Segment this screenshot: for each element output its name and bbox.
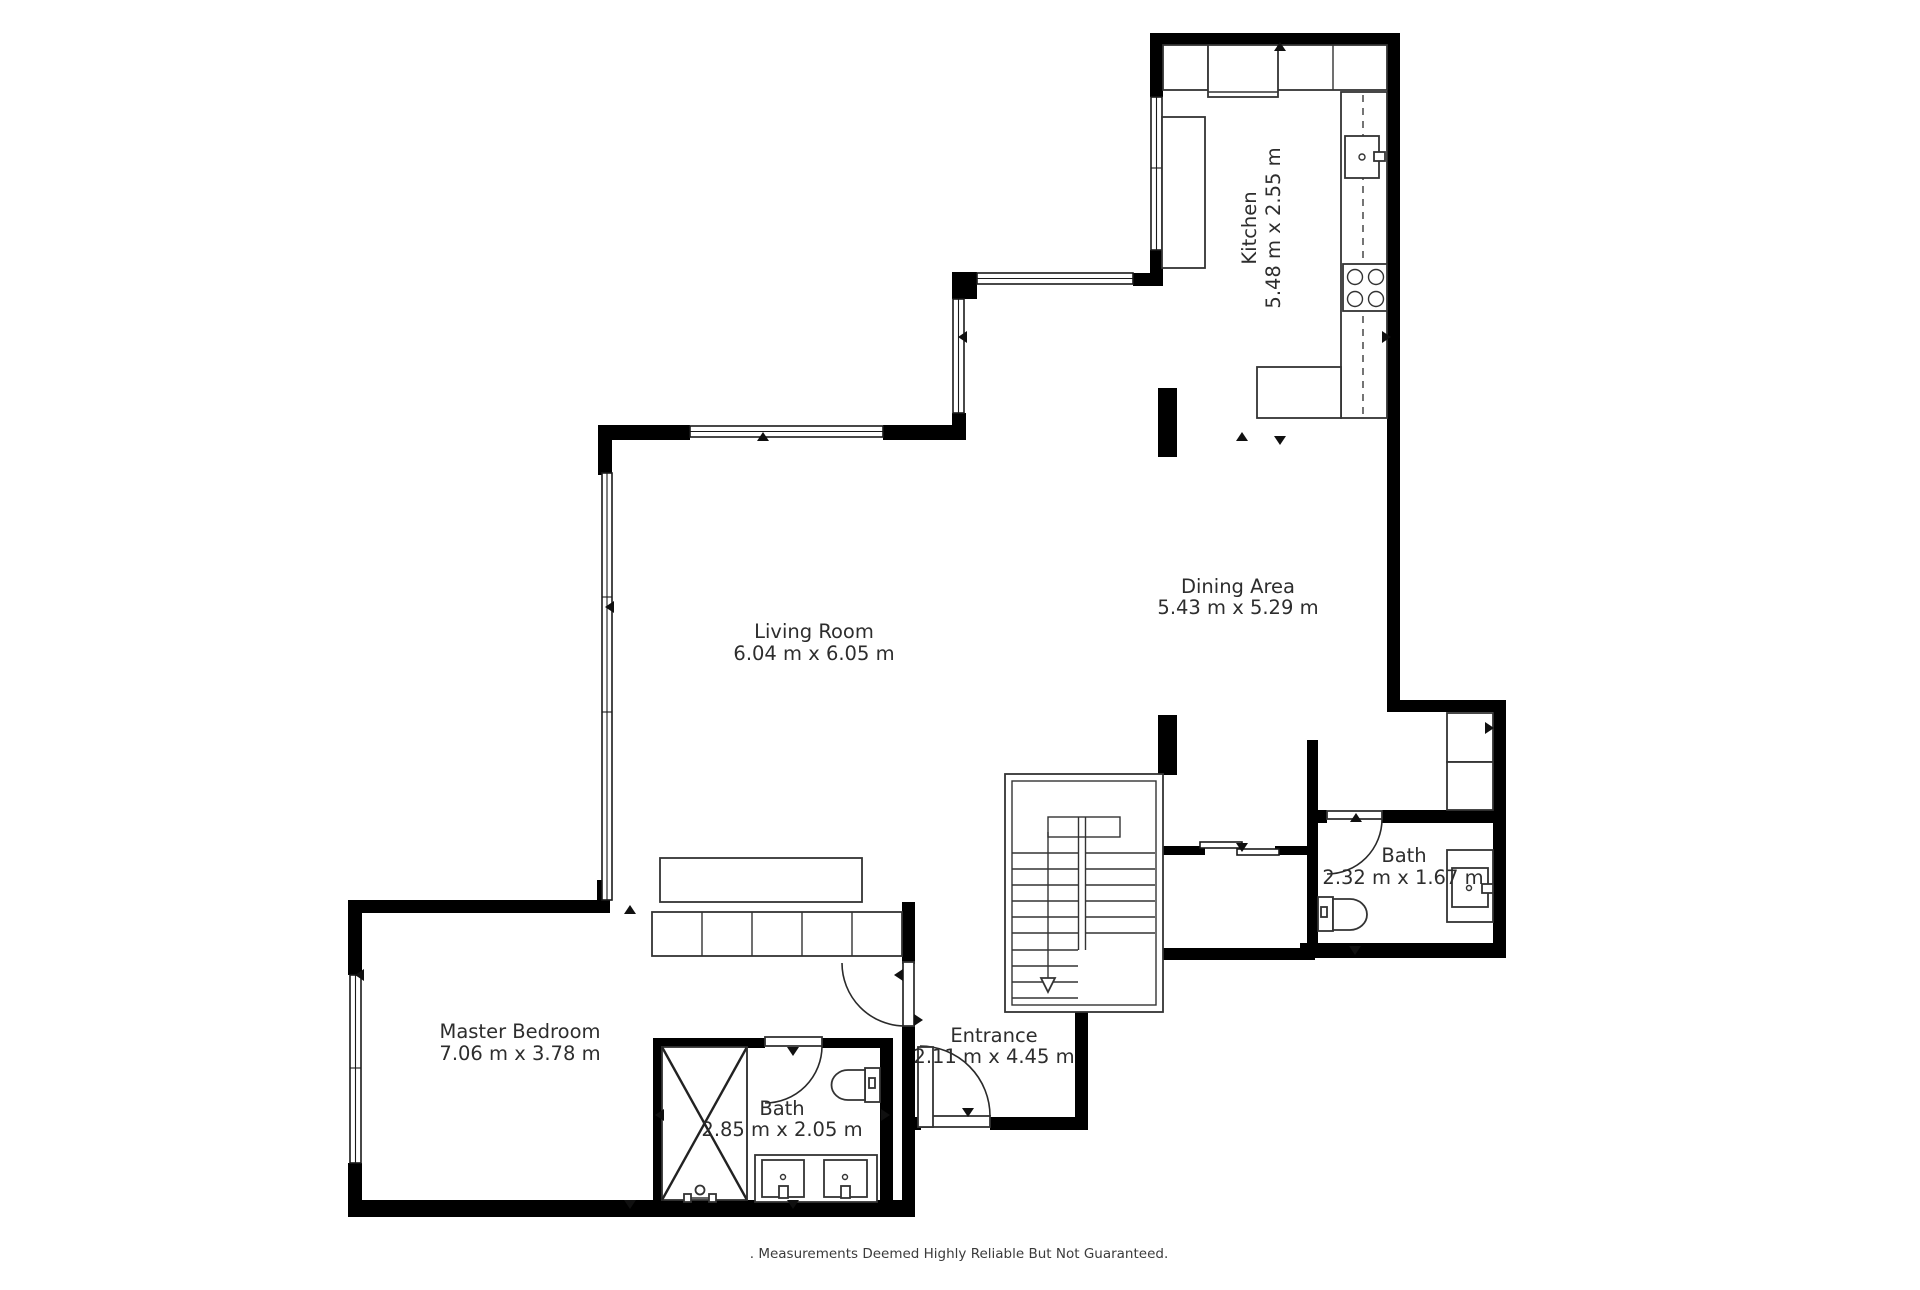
wall-far-right [1493,712,1506,958]
wall-pillar-a [1158,388,1177,457]
master-bedroom-label: Master Bedroom [440,1020,601,1043]
wall-bathright-top-left [1318,810,1327,823]
window-dining-top [977,273,1133,284]
wall-living-top-right [883,425,966,440]
kitchen-label: Kitchen [1238,191,1261,264]
wall-kitchen-right [1387,33,1400,712]
wall-right-jog [1387,700,1506,712]
window-bedroom-left [350,975,361,1163]
wall-bedroom-right-upper [902,902,915,964]
wall-kitchen-top [1150,33,1400,46]
window-kitchen-left [1151,97,1162,250]
disclaimer-text: . Measurements Deemed Highly Reliable Bu… [750,1246,1169,1262]
dining-area-label: Dining Area [1181,575,1295,598]
dining-area-dims: 5.43 m x 5.29 m [1157,596,1318,619]
sofa [660,858,862,902]
toilet [1318,897,1367,931]
floorplan-page: Living Room 6.04 m x 6.05 m Dining Area … [0,0,1920,1290]
wall-hall-top-right [1275,846,1308,855]
window-living-left [602,473,612,900]
window-living-top [690,426,883,437]
wall-masterbath-top-right [822,1038,884,1048]
entrance-label: Entrance [950,1024,1037,1047]
wall-living-topleft-block [598,425,612,475]
counter-right-ext [1257,367,1341,418]
stove [1343,264,1387,311]
wall-hall-bath [1307,740,1318,950]
toilet [832,1068,881,1102]
stairs [1005,774,1163,1012]
dishwasher [1208,45,1278,97]
wall-hall-top-left [1163,846,1205,855]
double-sink-vanity [755,1155,877,1202]
wall-dining-top-right-corner [1133,273,1163,286]
bath-right-label: Bath [1381,844,1426,867]
master-bedroom-dims: 7.06 m x 3.78 m [439,1042,600,1065]
wall-bedroom-left-upper [348,900,362,975]
closet-row [652,912,902,956]
door-bedroom [842,962,914,1026]
wall-entrance-bottom-right [990,1117,1088,1130]
wall-masterbath-right [880,1038,893,1217]
counter-island-left [1162,117,1205,268]
bath-master-dims: 2.85 m x 2.05 m [701,1118,862,1141]
wall-bathright-bottom [1300,943,1506,958]
living-room-label: Living Room [754,620,874,643]
wall-kitchen-left-top [1150,33,1163,97]
living-room-dims: 6.04 m x 6.05 m [733,642,894,665]
wall-pillar-b [1158,715,1177,775]
floorplan-drawing: Living Room 6.04 m x 6.05 m Dining Area … [0,0,1920,1290]
bath-master-label: Bath [759,1097,804,1120]
kitchen-sink [1345,136,1385,178]
wall-bedroom-top [348,900,610,913]
door-bath-master [765,1037,822,1103]
kitchen-dims: 5.48 m x 2.55 m [1262,147,1285,308]
bath-right-dims: 2.32 m x 1.67 m [1322,866,1483,889]
wall-bathright-top-right [1382,810,1493,823]
kitchen-label-group: Kitchen 5.48 m x 2.55 m [1238,147,1285,308]
wall-dining-top-left-corner [952,272,977,299]
window-dining-left [953,299,964,413]
entrance-dims: 2.11 m x 4.45 m [913,1045,1074,1068]
